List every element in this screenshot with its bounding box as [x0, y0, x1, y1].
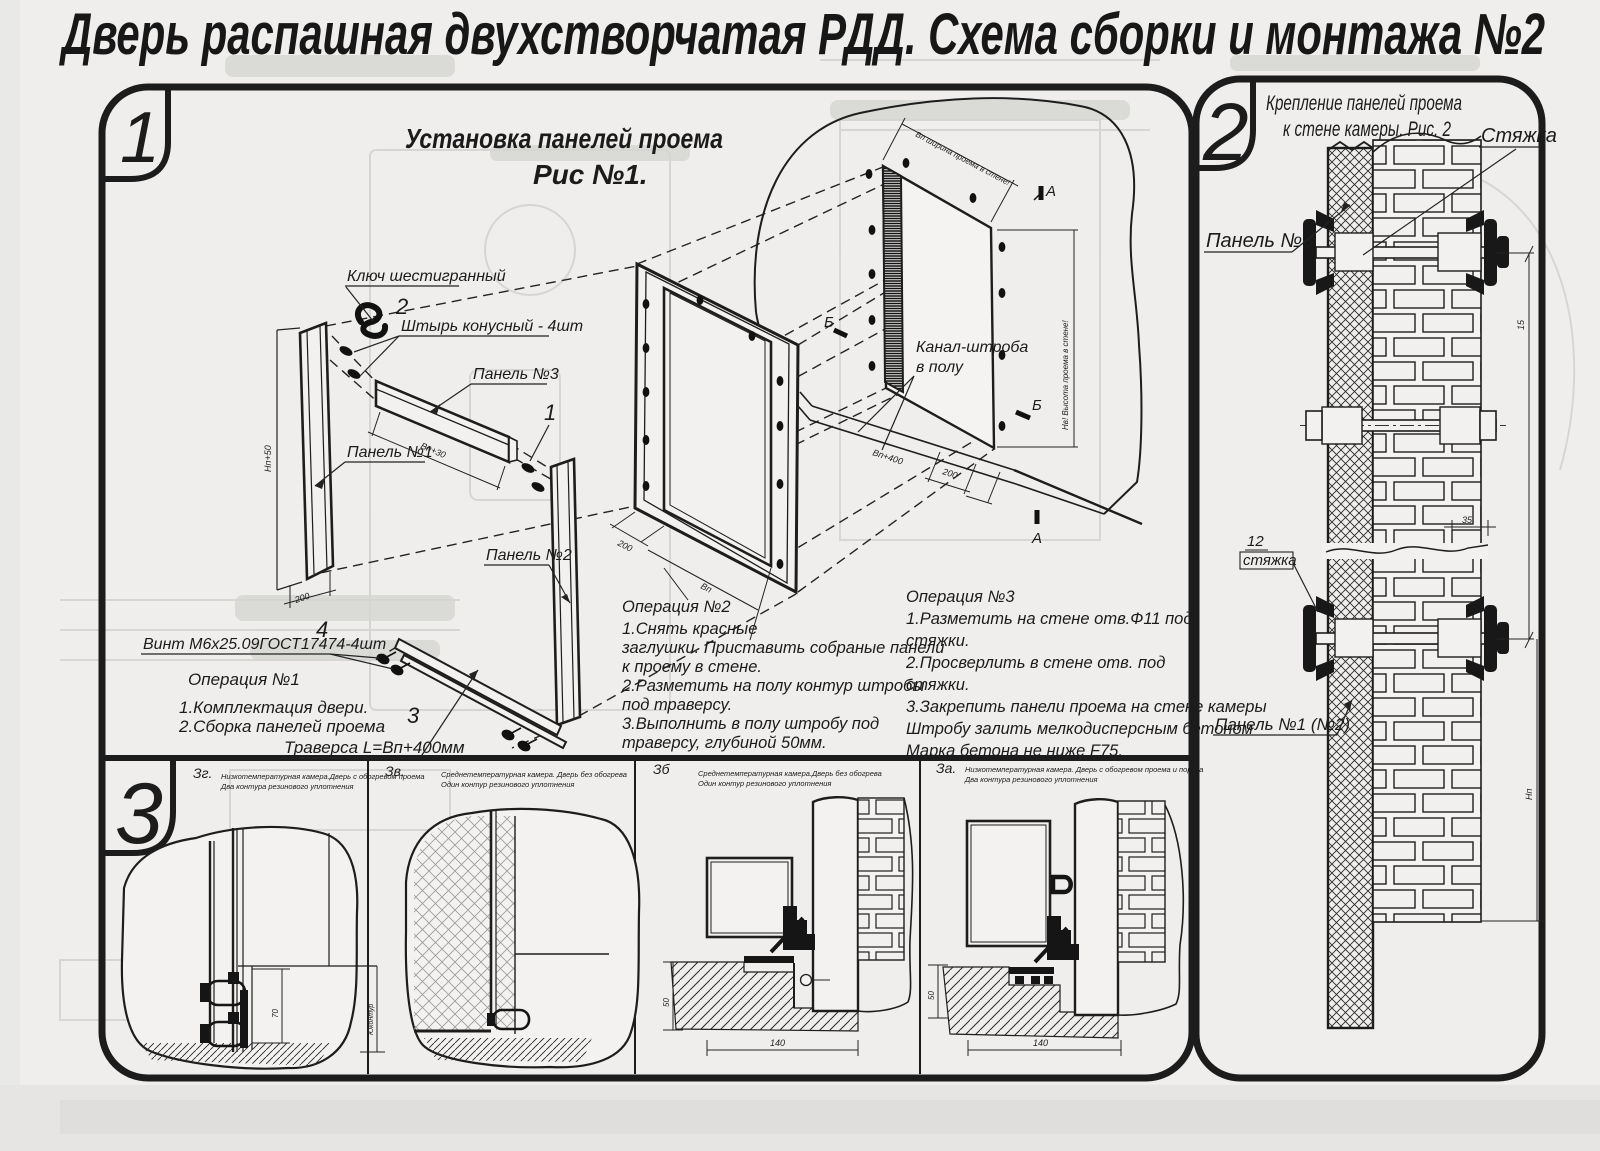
- svg-text:Операция №1: Операция №1: [188, 670, 300, 689]
- svg-text:Операция №2: Операция №2: [622, 598, 731, 616]
- svg-text:Крепление панелей проема: Крепление панелей проема: [1266, 92, 1462, 115]
- svg-text:Один контур резинового уплотне: Один контур резинового уплотнения: [698, 779, 831, 788]
- svg-text:Панель №2: Панель №2: [486, 547, 572, 564]
- svg-text:А: А: [1045, 183, 1056, 200]
- svg-text:Б: Б: [1032, 397, 1042, 414]
- svg-text:140: 140: [1033, 1038, 1048, 1048]
- svg-text:2.Сборка панелей проема: 2.Сборка панелей проема: [178, 717, 385, 736]
- svg-text:1: 1: [120, 98, 160, 178]
- svg-text:1.Снять красные: 1.Снять красные: [622, 620, 757, 638]
- svg-text:1.Разметить на стене отв.Ф11 п: 1.Разметить на стене отв.Ф11 под: [906, 610, 1192, 628]
- svg-text:Панель №3: Панель №3: [473, 366, 559, 383]
- svg-text:к стене камеры. Рис. 2: к стене камеры. Рис. 2: [1283, 118, 1451, 141]
- svg-text:Операция №3: Операция №3: [906, 588, 1015, 606]
- svg-text:Зв.: Зв.: [385, 763, 405, 779]
- svg-text:Дверь распашная двухстворчатая: Дверь распашная двухстворчатая РДД. Схем…: [58, 2, 1545, 67]
- svg-text:к проему в стене.: к проему в стене.: [622, 658, 762, 676]
- svg-text:2.Просверлить в стене отв. п: 2.Просверлить в стене отв. под: [905, 654, 1165, 672]
- svg-text:15: 15: [1516, 319, 1526, 330]
- svg-text:Марка бетона не ниже F75.: Марка бетона не ниже F75.: [906, 742, 1123, 760]
- svg-text:стяжки.: стяжки.: [906, 676, 970, 694]
- svg-text:Траверса L=Вп+400мм: Траверса L=Вп+400мм: [284, 738, 465, 757]
- svg-text:Стяжка: Стяжка: [1481, 125, 1557, 147]
- svg-text:1: 1: [544, 400, 556, 425]
- svg-text:2: 2: [1202, 87, 1249, 178]
- svg-text:Два контура резинового уплотне: Два контура резинового уплотнения: [220, 782, 354, 791]
- svg-text:Нв! Высота проема в стене!: Нв! Высота проема в стене!: [1061, 320, 1070, 430]
- svg-text:в полу: в полу: [916, 359, 964, 376]
- svg-text:Зг.: Зг.: [193, 765, 212, 781]
- svg-text:2: 2: [395, 294, 408, 319]
- svg-text:Юконтур: Юконтур: [368, 1004, 375, 1035]
- svg-text:Нп+50: Нп+50: [263, 445, 273, 472]
- svg-text:35: 35: [1462, 515, 1473, 525]
- svg-text:стяжки.: стяжки.: [906, 632, 970, 650]
- svg-text:12: 12: [1247, 533, 1264, 550]
- svg-text:Один контур резинового уплотне: Один контур резинового уплотнения: [441, 780, 574, 789]
- svg-text:50: 50: [927, 991, 936, 1000]
- svg-text:заглушки. Приставить собраные: заглушки. Приставить собраные панели: [621, 639, 944, 657]
- svg-text:Б: Б: [824, 314, 834, 331]
- svg-text:3: 3: [115, 766, 163, 862]
- svg-text:под траверсу.: под траверсу.: [622, 696, 732, 714]
- svg-text:Среднетемпературная камера.Две: Среднетемпературная камера.Дверь без обо…: [698, 769, 882, 778]
- svg-text:Ключ шестигранный: Ключ шестигранный: [347, 268, 506, 285]
- svg-text:Канал-штроба: Канал-штроба: [916, 339, 1028, 356]
- svg-text:140: 140: [770, 1038, 785, 1048]
- svg-text:Рис №1.: Рис №1.: [533, 159, 648, 190]
- svg-text:А: А: [1031, 530, 1042, 547]
- svg-text:Панель №1: Панель №1: [347, 444, 433, 461]
- svg-text:траверсу, глубиной 50мм.: траверсу, глубиной 50мм.: [622, 734, 827, 752]
- svg-text:50: 50: [662, 998, 671, 1007]
- svg-text:Штырь конусный - 4шт: Штырь конусный - 4шт: [401, 318, 583, 335]
- svg-text:2.Разметить на полу контур штр: 2.Разметить на полу контур штробы: [621, 677, 924, 695]
- svg-text:Два контура резинового уплотне: Два контура резинового уплотнения: [964, 775, 1098, 784]
- svg-text:Винт М6х25.09ГОСТ17474-4шт: Винт М6х25.09ГОСТ17474-4шт: [143, 636, 386, 653]
- svg-text:3: 3: [407, 703, 420, 728]
- svg-text:1.Комплектация двери.: 1.Комплектация двери.: [179, 698, 368, 717]
- svg-text:Среднетемпературная камера. Дв: Среднетемпературная камера. Дверь без об…: [441, 770, 627, 779]
- svg-text:стяжка: стяжка: [1243, 552, 1297, 569]
- svg-text:За.: За.: [936, 760, 956, 776]
- svg-text:Панель №1 (№2): Панель №1 (№2): [1215, 715, 1350, 734]
- svg-text:Нп: Нп: [1524, 789, 1534, 800]
- svg-text:3.Закрепить панели проема на с: 3.Закрепить панели проема на стене камер…: [906, 698, 1267, 716]
- svg-text:3.Выполнить в полу штробу под: 3.Выполнить в полу штробу под: [622, 715, 879, 733]
- svg-text:Панель №3: Панель №3: [1206, 230, 1313, 252]
- svg-text:Зб: Зб: [653, 761, 671, 777]
- svg-text:Установка панелей проема: Установка панелей проема: [405, 123, 723, 154]
- svg-text:Низкотемпературная камера. Две: Низкотемпературная камера. Дверь с обогр…: [965, 765, 1203, 774]
- svg-text:70: 70: [271, 1009, 280, 1018]
- svg-text:Штробу залить мелкодисперсным: Штробу залить мелкодисперсным бетоном: [906, 720, 1253, 738]
